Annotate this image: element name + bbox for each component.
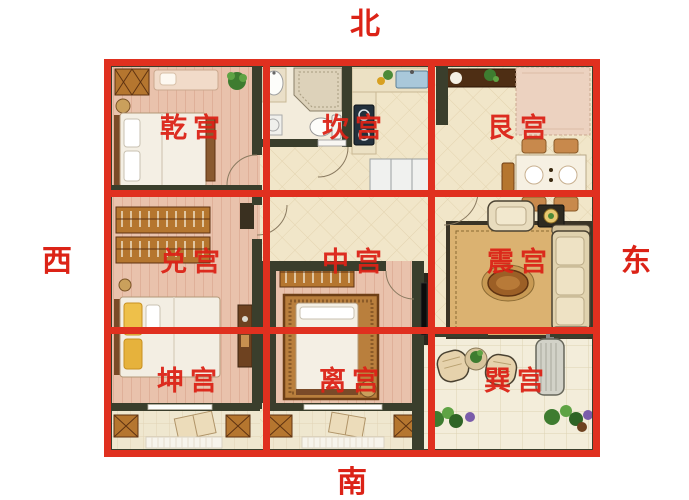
grid-line-left-border (104, 59, 111, 457)
compass-south: 南 (337, 468, 367, 498)
grid-line-right-border (593, 59, 600, 457)
grid-line-top-border (104, 59, 600, 66)
grid-line-vertical-2 (428, 59, 435, 457)
grid-line-bottom-border (104, 450, 600, 457)
feng-shui-nine-palace-floorplan: 乾宫 坎宫 艮宫 兑宫 中宫 震宫 坤宫 离宫 巽宫 北 南 西 东 (0, 0, 689, 500)
compass-east: 东 (621, 247, 651, 277)
compass-west: 西 (42, 247, 72, 277)
grid-line-horizontal-1 (104, 190, 600, 197)
floorplan (104, 59, 600, 457)
grid-line-horizontal-2 (104, 327, 600, 334)
grid-line-vertical-1 (263, 59, 270, 457)
living-room-furniture (448, 201, 590, 337)
compass-north: 北 (350, 10, 380, 40)
floorplan-artwork (104, 59, 600, 457)
